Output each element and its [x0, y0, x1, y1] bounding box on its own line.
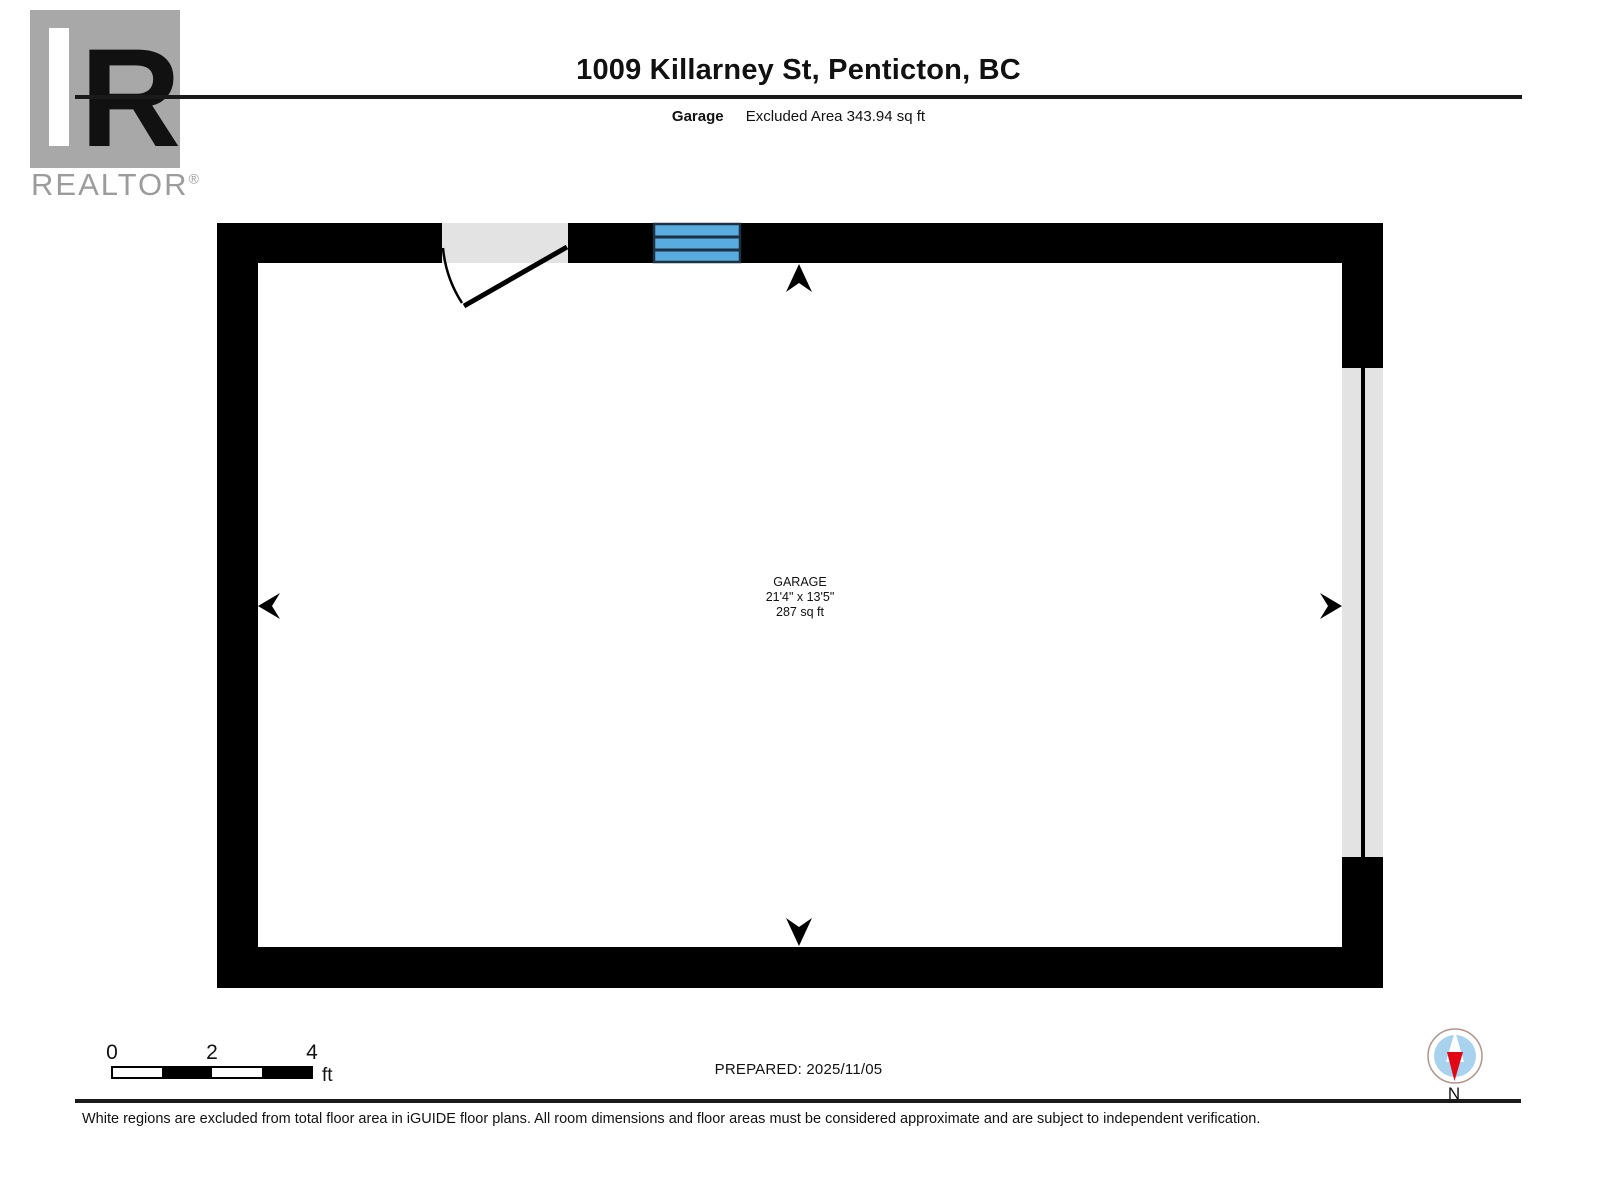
window-glass — [654, 224, 740, 262]
dimension-arrow-down-icon — [786, 918, 812, 946]
wall-left — [217, 223, 258, 988]
floorplan-page: R REALTOR® 1009 Killarney St, Penticton,… — [0, 0, 1600, 1200]
dimension-arrow-up-icon — [786, 264, 812, 292]
room-label: GARAGE 21'4" x 13'5" 287 sq ft — [766, 575, 835, 619]
room-dimensions: 21'4" x 13'5" — [766, 590, 835, 604]
floorplan-drawing: GARAGE 21'4" x 13'5" 287 sq ft 0 2 4 ft … — [0, 0, 1600, 1200]
disclaimer-text: White regions are excluded from total fl… — [82, 1111, 1522, 1127]
room-name: GARAGE — [773, 575, 827, 589]
room-area: 287 sq ft — [776, 605, 824, 619]
wall-right-top-segment — [1342, 223, 1383, 368]
footer-divider-line — [75, 1099, 1521, 1103]
wall-bottom — [217, 947, 1383, 988]
wall-top-middle-segment — [568, 223, 654, 263]
dimension-arrow-left-icon — [258, 593, 280, 619]
window-icon — [654, 224, 740, 262]
prepared-date: PREPARED: 2025/11/05 — [75, 1061, 1522, 1078]
wall-right-bottom-segment — [1342, 857, 1383, 988]
wall-top-right-segment — [740, 223, 1383, 263]
dimension-arrow-right-icon — [1320, 593, 1342, 619]
